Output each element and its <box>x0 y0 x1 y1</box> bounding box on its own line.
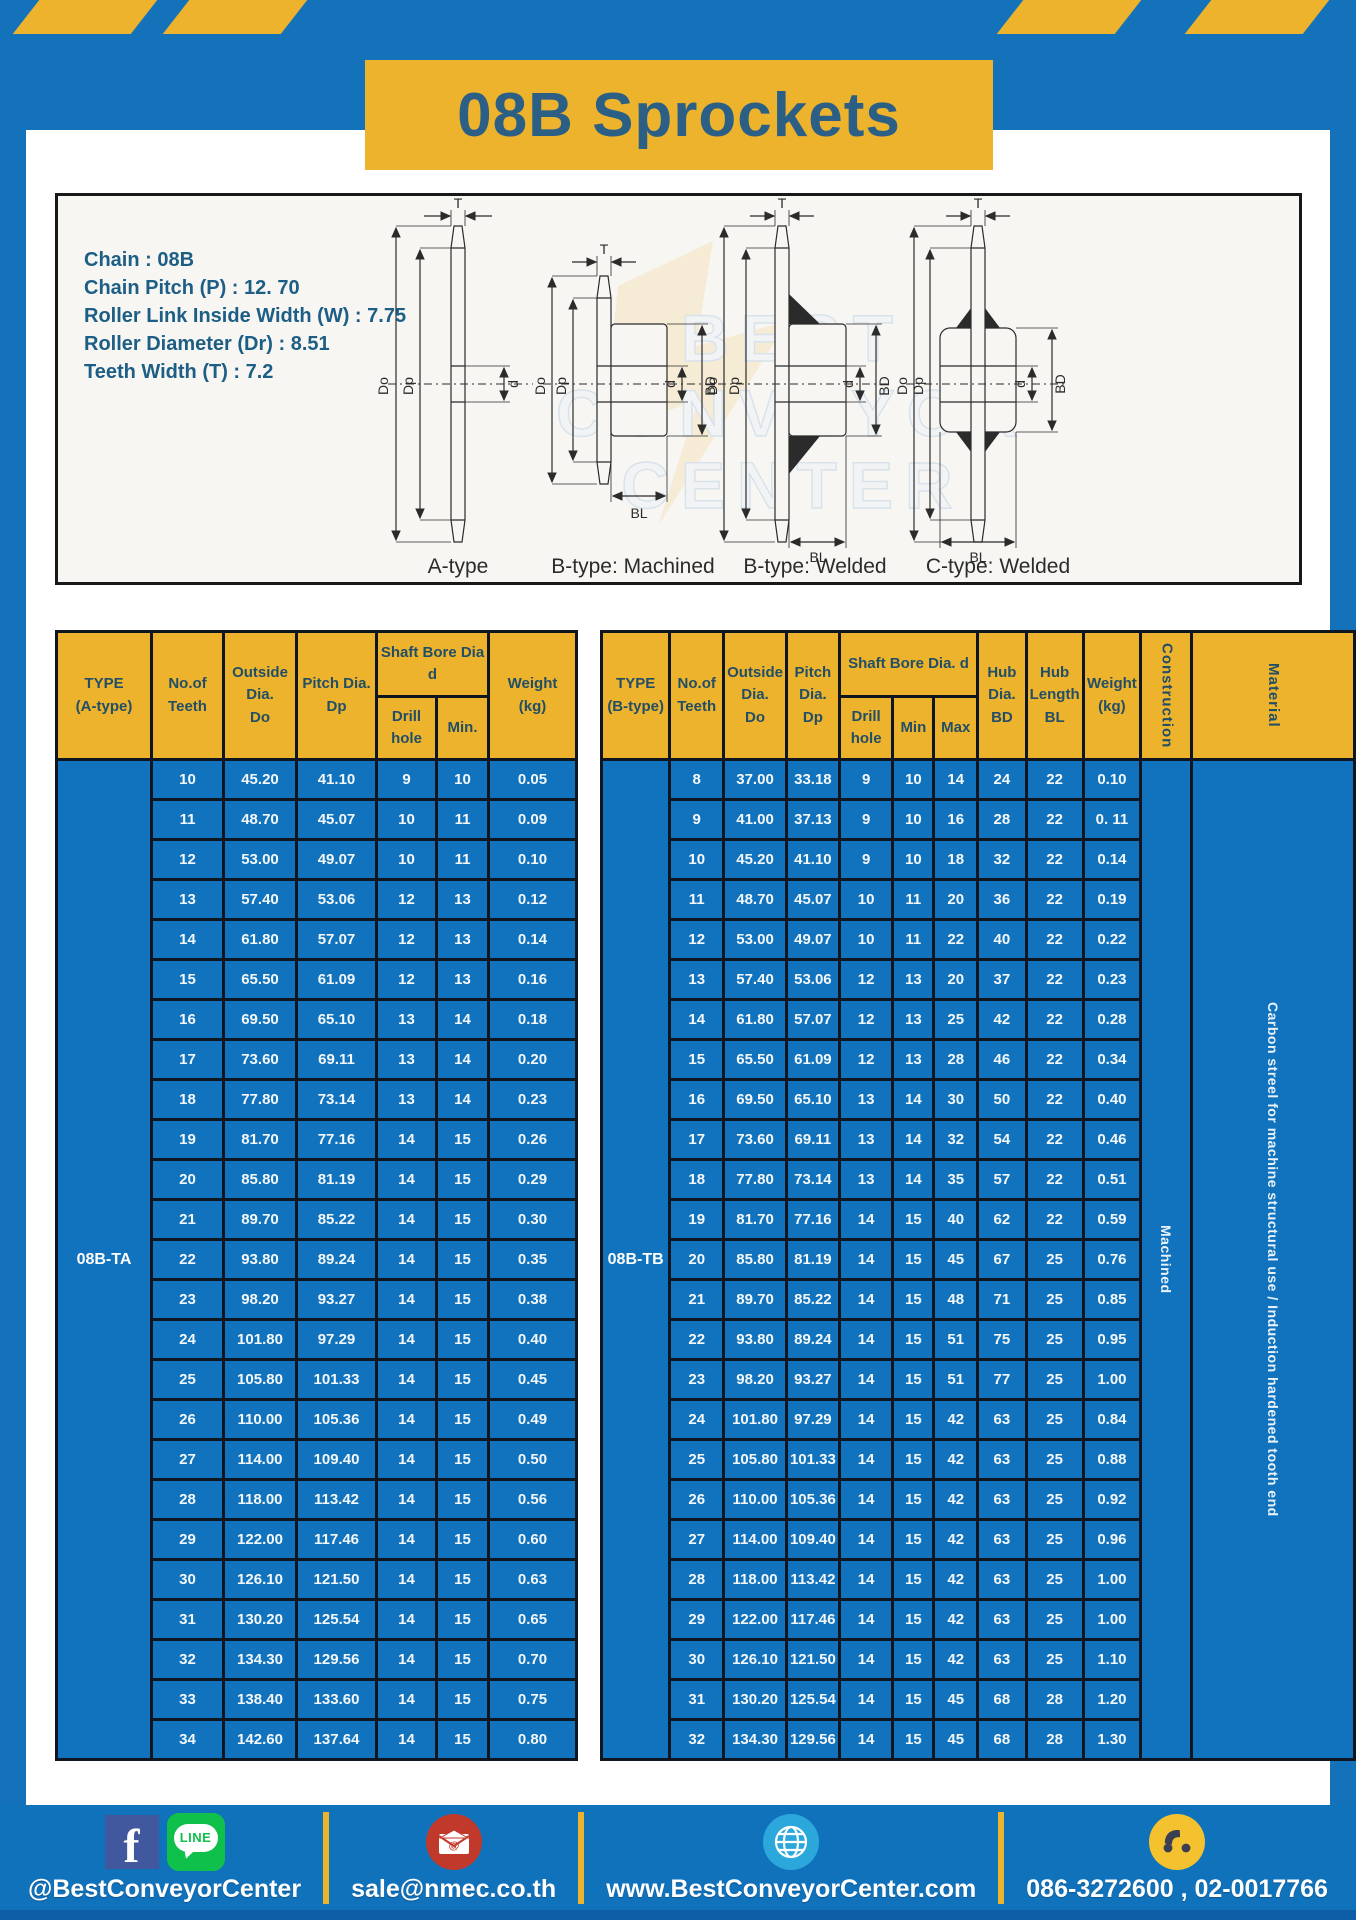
table-cell: 109.40 <box>297 1440 377 1480</box>
table-cell: 15 <box>437 1160 489 1200</box>
email-address: sale@nmec.co.th <box>351 1875 556 1904</box>
table-cell: 0.80 <box>489 1720 577 1760</box>
table-cell: 77.80 <box>224 1080 297 1120</box>
table-cell: 97.29 <box>297 1320 377 1360</box>
table-cell: 13 <box>152 880 224 920</box>
table-cell: 21 <box>670 1280 724 1320</box>
table-cell: 15 <box>437 1480 489 1520</box>
table-cell: 25 <box>1026 1240 1083 1280</box>
table-cell: 15 <box>437 1720 489 1760</box>
dim-label-t: T <box>600 241 609 257</box>
table-cell: 53.06 <box>297 880 377 920</box>
col-header-drill-hole-b: Drill hole <box>839 697 893 760</box>
table-cell: 22 <box>1026 840 1083 880</box>
table-cell: 0.19 <box>1083 880 1141 920</box>
dim-label-d: d <box>1012 380 1028 388</box>
table-cell: 0.84 <box>1083 1400 1141 1440</box>
table-cell: 13 <box>893 1040 934 1080</box>
table-cell: 42 <box>934 1600 978 1640</box>
line-bubble-tail <box>182 1847 195 1859</box>
table-cell: 57.40 <box>224 880 297 920</box>
table-cell: 63 <box>978 1440 1026 1480</box>
table-cell: 0.85 <box>1083 1280 1141 1320</box>
table-cell: 22 <box>1026 960 1083 1000</box>
table-cell: 25 <box>1026 1600 1083 1640</box>
table-cell: 54 <box>978 1120 1026 1160</box>
table-cell: 117.46 <box>297 1520 377 1560</box>
table-cell: 14 <box>377 1600 437 1640</box>
table-cell: 16 <box>934 800 978 840</box>
table-cell: 110.00 <box>724 1480 787 1520</box>
dim-label-dp: Dp <box>553 377 569 395</box>
table-row: 08B-TB837.0033.189101424220.10MachinedCa… <box>602 760 1355 800</box>
table-cell: 15 <box>437 1280 489 1320</box>
table-cell: 13 <box>839 1080 893 1120</box>
table-cell: 121.50 <box>786 1640 839 1680</box>
col-header-type-a: TYPE (A-type) <box>57 632 152 760</box>
table-cell: 30 <box>152 1560 224 1600</box>
table-cell: 61.09 <box>297 960 377 1000</box>
table-cell: 28 <box>934 1040 978 1080</box>
table-cell: 0.14 <box>489 920 577 960</box>
table-cell: 14 <box>377 1480 437 1520</box>
page: 08B Sprockets BEST CONVEYOR CENTER <box>0 0 1356 1920</box>
table-cell: 14 <box>839 1400 893 1440</box>
table-cell: 13 <box>893 960 934 1000</box>
dim-label-t: T <box>778 196 787 211</box>
table-cell: 12 <box>839 1040 893 1080</box>
table-cell: 68 <box>978 1720 1026 1760</box>
dim-label-bl: BL <box>630 505 647 521</box>
col-header-min-b: Min <box>893 697 934 760</box>
table-cell: 22 <box>1026 1200 1083 1240</box>
table-cell: 36 <box>978 880 1026 920</box>
table-cell: 65.50 <box>224 960 297 1000</box>
spec-chain: Chain : 08B <box>84 246 554 274</box>
table-cell: 11 <box>437 840 489 880</box>
type-label-cell: 08B-TB <box>602 760 670 1760</box>
table-cell: 0.63 <box>489 1560 577 1600</box>
table-cell: 12 <box>377 920 437 960</box>
table-cell: 125.54 <box>786 1680 839 1720</box>
table-cell: 77.80 <box>724 1160 787 1200</box>
table-cell: 0.14 <box>1083 840 1141 880</box>
table-cell: 134.30 <box>224 1640 297 1680</box>
table-cell: 75 <box>978 1320 1026 1360</box>
table-cell: 0.45 <box>489 1360 577 1400</box>
table-cell: 69.50 <box>724 1080 787 1120</box>
table-cell: 20 <box>934 960 978 1000</box>
social-icons: f LINE <box>105 1812 225 1872</box>
table-cell: 14 <box>152 920 224 960</box>
table-cell: 0.22 <box>1083 920 1141 960</box>
table-cell: 25 <box>1026 1520 1083 1560</box>
table-cell: 13 <box>377 1040 437 1080</box>
table-cell: 0.76 <box>1083 1240 1141 1280</box>
table-cell: 0.95 <box>1083 1320 1141 1360</box>
table-cell: 0.75 <box>489 1680 577 1720</box>
table-cell: 14 <box>839 1680 893 1720</box>
table-cell: 10 <box>152 760 224 800</box>
table-cell: 73.60 <box>224 1040 297 1080</box>
dim-label-d: d <box>840 380 856 388</box>
table-cell: 57 <box>978 1160 1026 1200</box>
table-cell: 12 <box>839 1000 893 1040</box>
table-cell: 73.14 <box>786 1160 839 1200</box>
table-cell: 50 <box>978 1080 1026 1120</box>
table-cell: 27 <box>152 1440 224 1480</box>
footer-website-section: www.BestConveyorCenter.com <box>606 1812 976 1904</box>
table-cell: 85.22 <box>786 1280 839 1320</box>
col-header-teeth-b: No.of Teeth <box>670 632 724 760</box>
table-cell: 42 <box>934 1480 978 1520</box>
table-cell: 53.00 <box>724 920 787 960</box>
table-cell: 24 <box>670 1400 724 1440</box>
table-cell: 10 <box>893 800 934 840</box>
table-cell: 81.70 <box>224 1120 297 1160</box>
table-cell: 48.70 <box>224 800 297 840</box>
table-cell: 42 <box>934 1440 978 1480</box>
footer-bar: f LINE @BestConveyorCenter @ <box>0 1805 1356 1920</box>
table-cell: 9 <box>839 760 893 800</box>
table-cell: 14 <box>839 1520 893 1560</box>
merged-value-cell: Carbon streel for machine structural use… <box>1191 760 1354 1760</box>
col-header-outside-dia-b: Outside Dia. Do <box>724 632 787 760</box>
table-cell: 53.00 <box>224 840 297 880</box>
facebook-handle: @BestConveyorCenter <box>28 1875 301 1904</box>
table-cell: 14 <box>839 1320 893 1360</box>
table-cell: 10 <box>377 800 437 840</box>
table-cell: 25 <box>670 1440 724 1480</box>
table-cell: 13 <box>437 880 489 920</box>
table-cell: 29 <box>670 1600 724 1640</box>
table-cell: 0.46 <box>1083 1120 1141 1160</box>
table-cell: 15 <box>893 1600 934 1640</box>
table-cell: 89.70 <box>724 1280 787 1320</box>
table-cell: 0.59 <box>1083 1200 1141 1240</box>
table-cell: 42 <box>978 1000 1026 1040</box>
table-cell: 73.60 <box>724 1120 787 1160</box>
table-cell: 0.23 <box>489 1080 577 1120</box>
col-header-pitch-dia-a: Pitch Dia. Dp <box>297 632 377 760</box>
table-cell: 22 <box>1026 1120 1083 1160</box>
table-cell: 1.30 <box>1083 1720 1141 1760</box>
table-cell: 9 <box>839 840 893 880</box>
table-cell: 105.80 <box>224 1360 297 1400</box>
footer-email-section: @ sale@nmec.co.th <box>351 1812 556 1904</box>
table-cell: 41.10 <box>786 840 839 880</box>
table-cell: 40 <box>934 1200 978 1240</box>
table-cell: 0.50 <box>489 1440 577 1480</box>
table-cell: 98.20 <box>224 1280 297 1320</box>
table-cell: 118.00 <box>724 1560 787 1600</box>
table-cell: 137.64 <box>297 1720 377 1760</box>
table-cell: 63 <box>978 1560 1026 1600</box>
table-cell: 18 <box>934 840 978 880</box>
table-cell: 45.20 <box>724 840 787 880</box>
table-cell: 65.10 <box>297 1000 377 1040</box>
facebook-letter: f <box>124 1825 140 1868</box>
table-cell: 0.05 <box>489 760 577 800</box>
table-cell: 37.00 <box>724 760 787 800</box>
table-cell: 71 <box>978 1280 1026 1320</box>
table-cell: 13 <box>377 1000 437 1040</box>
table-a-wrapper: TYPE (A-type) No.of Teeth Outside Dia. D… <box>55 630 578 1761</box>
table-cell: 89.70 <box>224 1200 297 1240</box>
table-cell: 25 <box>1026 1400 1083 1440</box>
table-cell: 11 <box>893 880 934 920</box>
table-cell: 30 <box>934 1080 978 1120</box>
decorative-stripe <box>13 0 158 34</box>
table-cell: 25 <box>1026 1440 1083 1480</box>
website-url: www.BestConveyorCenter.com <box>606 1875 976 1904</box>
table-cell: 13 <box>670 960 724 1000</box>
table-cell: 16 <box>670 1080 724 1120</box>
table-cell: 85.22 <box>297 1200 377 1240</box>
table-cell: 0.10 <box>489 840 577 880</box>
table-cell: 20 <box>670 1240 724 1280</box>
table-cell: 15 <box>893 1520 934 1560</box>
table-cell: 0.51 <box>1083 1160 1141 1200</box>
table-cell: 10 <box>893 760 934 800</box>
table-cell: 130.20 <box>724 1680 787 1720</box>
caption-b-type-machined: B-type: Machined <box>551 555 714 578</box>
table-cell: 134.30 <box>724 1720 787 1760</box>
table-cell: 22 <box>1026 880 1083 920</box>
table-cell: 8 <box>670 760 724 800</box>
table-cell: 97.29 <box>786 1400 839 1440</box>
table-cell: 12 <box>670 920 724 960</box>
table-cell: 22 <box>1026 1080 1083 1120</box>
table-cell: 21 <box>152 1200 224 1240</box>
col-header-weight-a: Weight (kg) <box>489 632 577 760</box>
table-cell: 105.80 <box>724 1440 787 1480</box>
table-cell: 13 <box>839 1160 893 1200</box>
table-cell: 12 <box>152 840 224 880</box>
table-cell: 12 <box>377 880 437 920</box>
table-cell: 25 <box>1026 1640 1083 1680</box>
table-cell: 85.80 <box>224 1160 297 1200</box>
table-cell: 14 <box>437 1000 489 1040</box>
footer-phone-section: 086-3272600 , 02-0017766 <box>1026 1812 1328 1904</box>
phone-numbers: 086-3272600 , 02-0017766 <box>1026 1875 1328 1904</box>
table-cell: 89.24 <box>297 1240 377 1280</box>
table-cell: 28 <box>152 1480 224 1520</box>
table-cell: 15 <box>437 1360 489 1400</box>
col-header-max-b: Max <box>934 697 978 760</box>
table-cell: 0.35 <box>489 1240 577 1280</box>
table-cell: 0.34 <box>1083 1040 1141 1080</box>
table-cell: 45.07 <box>297 800 377 840</box>
decorative-stripe <box>997 0 1142 34</box>
table-cell: 15 <box>437 1320 489 1360</box>
col-header-hub-length-b: Hub Length BL <box>1026 632 1083 760</box>
table-cell: 48 <box>934 1280 978 1320</box>
table-cell: 17 <box>152 1040 224 1080</box>
table-cell: 15 <box>437 1400 489 1440</box>
table-cell: 81.70 <box>724 1200 787 1240</box>
table-cell: 0.09 <box>489 800 577 840</box>
table-cell: 14 <box>377 1160 437 1200</box>
table-cell: 14 <box>839 1440 893 1480</box>
table-cell: 101.80 <box>724 1400 787 1440</box>
table-cell: 13 <box>893 1000 934 1040</box>
decorative-stripe <box>163 0 308 34</box>
table-cell: 40 <box>978 920 1026 960</box>
table-cell: 14 <box>839 1560 893 1600</box>
table-cell: 25 <box>1026 1320 1083 1360</box>
table-cell: 24 <box>978 760 1026 800</box>
table-cell: 15 <box>152 960 224 1000</box>
email-icon: @ <box>426 1814 482 1870</box>
table-cell: 14 <box>839 1600 893 1640</box>
table-cell: 10 <box>437 760 489 800</box>
table-cell: 10 <box>839 920 893 960</box>
table-cell: 48.70 <box>724 880 787 920</box>
table-cell: 14 <box>377 1280 437 1320</box>
table-cell: 133.60 <box>297 1680 377 1720</box>
dim-label-bd: BD <box>876 376 892 395</box>
col-header-material: Material <box>1191 632 1354 760</box>
table-cell: 10 <box>839 880 893 920</box>
table-cell: 22 <box>1026 800 1083 840</box>
table-cell: 32 <box>978 840 1026 880</box>
table-cell: 0.16 <box>489 960 577 1000</box>
table-cell: 14 <box>893 1160 934 1200</box>
table-cell: 37 <box>978 960 1026 1000</box>
col-header-shaft-bore-b: Shaft Bore Dia. d <box>839 632 977 697</box>
table-cell: 18 <box>152 1080 224 1120</box>
table-cell: 93.27 <box>297 1280 377 1320</box>
table-cell: 1.20 <box>1083 1680 1141 1720</box>
table-cell: 49.07 <box>297 840 377 880</box>
table-cell: 1.10 <box>1083 1640 1141 1680</box>
chain-specs: Chain : 08B Chain Pitch (P) : 12. 70 Rol… <box>84 246 554 386</box>
table-cell: 0.92 <box>1083 1480 1141 1520</box>
table-cell: 25 <box>152 1360 224 1400</box>
table-cell: 10 <box>670 840 724 880</box>
parts-table-a-type: TYPE (A-type) No.of Teeth Outside Dia. D… <box>55 630 578 1761</box>
table-cell: 0.28 <box>1083 1000 1141 1040</box>
table-cell: 0.65 <box>489 1600 577 1640</box>
title-banner: 08B Sprockets <box>365 60 993 170</box>
table-cell: 25 <box>1026 1480 1083 1520</box>
decorative-stripe <box>1185 0 1330 34</box>
table-cell: 20 <box>152 1160 224 1200</box>
table-cell: 14 <box>670 1000 724 1040</box>
col-header-weight-b: Weight (kg) <box>1083 632 1141 760</box>
table-cell: 22 <box>1026 760 1083 800</box>
table-cell: 45.07 <box>786 880 839 920</box>
table-cell: 113.42 <box>786 1560 839 1600</box>
table-cell: 37.13 <box>786 800 839 840</box>
table-cell: 61.80 <box>224 920 297 960</box>
table-cell: 63 <box>978 1520 1026 1560</box>
table-cell: 0.18 <box>489 1000 577 1040</box>
table-cell: 0.20 <box>489 1040 577 1080</box>
caption-c-type-welded: C-type: Welded <box>926 555 1070 578</box>
table-cell: 14 <box>839 1240 893 1280</box>
table-cell: 0.10 <box>1083 760 1141 800</box>
table-cell: 41.00 <box>724 800 787 840</box>
table-cell: 41.10 <box>297 760 377 800</box>
merged-value-cell: Machined <box>1141 760 1192 1760</box>
table-cell: 14 <box>437 1080 489 1120</box>
table-cell: 14 <box>377 1400 437 1440</box>
table-cell: 11 <box>670 880 724 920</box>
table-cell: 14 <box>839 1480 893 1520</box>
spec-chain-pitch: Chain Pitch (P) : 12. 70 <box>84 274 554 302</box>
table-cell: 23 <box>670 1360 724 1400</box>
type-label-cell: 08B-TA <box>57 760 152 1760</box>
table-cell: 51 <box>934 1320 978 1360</box>
table-cell: 62 <box>978 1200 1026 1240</box>
table-cell: 14 <box>377 1440 437 1480</box>
table-cell: 129.56 <box>786 1720 839 1760</box>
table-cell: 57.07 <box>297 920 377 960</box>
caption-b-type-welded: B-type: Welded <box>743 555 886 578</box>
table-cell: 34 <box>152 1720 224 1760</box>
table-cell: 109.40 <box>786 1520 839 1560</box>
table-cell: 63 <box>978 1480 1026 1520</box>
table-cell: 33.18 <box>786 760 839 800</box>
table-cell: 14 <box>437 1040 489 1080</box>
table-cell: 14 <box>377 1720 437 1760</box>
table-cell: 11 <box>437 800 489 840</box>
col-header-type-b: TYPE (B-type) <box>602 632 670 760</box>
footer-divider <box>578 1812 584 1904</box>
table-cell: 14 <box>377 1200 437 1240</box>
parts-table-b-type: TYPE (B-type) No.of Teeth Outside Dia. D… <box>600 630 1356 1761</box>
table-cell: 69.50 <box>224 1000 297 1040</box>
table-cell: 57.40 <box>724 960 787 1000</box>
table-cell: 22 <box>152 1240 224 1280</box>
col-header-shaft-bore-a: Shaft Bore Dia d <box>377 632 489 697</box>
table-cell: 23 <box>152 1280 224 1320</box>
footer-divider <box>998 1812 1004 1904</box>
table-cell: 0.60 <box>489 1520 577 1560</box>
dim-label-bd: BD <box>1052 374 1068 393</box>
table-cell: 0.88 <box>1083 1440 1141 1480</box>
table-cell: 17 <box>670 1120 724 1160</box>
table-cell: 65.50 <box>724 1040 787 1080</box>
dim-label-do: Do <box>894 377 910 395</box>
table-cell: 46 <box>978 1040 1026 1080</box>
table-cell: 22 <box>1026 1000 1083 1040</box>
dim-label-do: Do <box>704 377 720 395</box>
table-cell: 68 <box>978 1680 1026 1720</box>
table-cell: 31 <box>152 1600 224 1640</box>
line-bubble: LINE <box>174 1824 218 1852</box>
table-cell: 98.20 <box>724 1360 787 1400</box>
table-cell: 20 <box>934 880 978 920</box>
table-cell: 13 <box>839 1120 893 1160</box>
table-cell: 53.06 <box>786 960 839 1000</box>
table-cell: 42 <box>934 1400 978 1440</box>
table-cell: 101.33 <box>297 1360 377 1400</box>
caption-a-type: A-type <box>428 555 489 578</box>
table-cell: 15 <box>893 1680 934 1720</box>
table-cell: 122.00 <box>724 1600 787 1640</box>
table-cell: 32 <box>152 1640 224 1680</box>
table-cell: 15 <box>670 1040 724 1080</box>
table-cell: 0.40 <box>489 1320 577 1360</box>
table-cell: 61.80 <box>724 1000 787 1040</box>
table-cell: 31 <box>670 1680 724 1720</box>
table-cell: 15 <box>437 1600 489 1640</box>
table-cell: 114.00 <box>724 1520 787 1560</box>
table-b-body: 08B-TB837.0033.189101424220.10MachinedCa… <box>602 760 1355 1760</box>
